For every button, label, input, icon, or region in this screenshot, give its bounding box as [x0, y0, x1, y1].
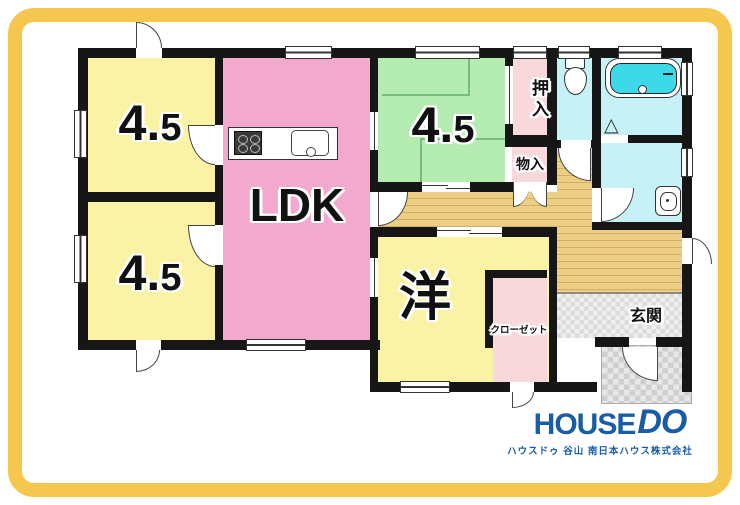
door-opening: [592, 188, 601, 222]
wall: [592, 222, 684, 230]
door-opening: [682, 238, 692, 264]
wall: [78, 340, 380, 350]
logo-text-do: DO: [637, 403, 686, 442]
genkan-step-line: [557, 292, 684, 294]
wall: [485, 270, 493, 348]
door-opening: [510, 382, 534, 392]
wall: [505, 135, 547, 147]
sliding-door-line: [374, 112, 375, 150]
room-label-tatami-a: 4.5: [95, 98, 205, 148]
corridor-entry-hall: [557, 227, 684, 293]
door-opening: [561, 140, 591, 148]
wall: [78, 192, 223, 202]
window: [681, 62, 693, 96]
sliding-door-line: [446, 188, 470, 189]
wall: [549, 227, 557, 392]
window: [681, 148, 693, 177]
window: [415, 46, 480, 59]
room-label-tatami-b: 4.5: [95, 248, 205, 298]
company-tagline: ハウスドゥ 谷山 南日本ハウス株式会社: [472, 443, 728, 457]
room-label-oshiire: 押入: [512, 70, 547, 130]
room-label-closet: クローゼット: [487, 326, 551, 336]
window: [285, 46, 332, 59]
room-label-western: 洋: [375, 272, 475, 324]
room-label-tatami-c: 4.5: [388, 100, 498, 150]
door-arc: [136, 22, 162, 48]
window: [74, 110, 87, 158]
floor-plan-page: △ 4.5 4.5 LDK 4.5 押入 物入 洋 クローゼット 玄関 HOUS…: [0, 0, 740, 505]
window: [74, 235, 87, 283]
room-label-genkan: 玄関: [618, 309, 674, 325]
door-opening: [215, 125, 223, 165]
door-arc: [136, 350, 160, 372]
housedo-logo: HOUSE DO: [492, 406, 728, 442]
sliding-door-line: [509, 66, 510, 124]
window: [400, 381, 450, 393]
washbasin-icon: [655, 186, 681, 216]
wall: [656, 337, 682, 347]
wall: [592, 48, 601, 143]
tatami-line: [382, 94, 470, 96]
wall: [682, 48, 692, 392]
stove-icon: [234, 131, 262, 155]
sliding-door: [422, 182, 470, 192]
room-label-monoire: 物入: [508, 157, 552, 171]
room-label-ldk: LDK: [222, 182, 372, 228]
logo-text-house: HOUSE: [534, 408, 636, 442]
sliding-door: [437, 227, 502, 237]
bathtub-icon: [605, 58, 681, 98]
window: [513, 46, 547, 59]
entry-side-area: [557, 338, 595, 382]
wall: [485, 270, 547, 278]
door-opening: [601, 135, 628, 143]
wall: [595, 337, 629, 347]
door-opening: [136, 340, 161, 350]
door-opening: [136, 48, 162, 58]
kitchen-sink-icon: [291, 130, 329, 156]
toilet-icon: [564, 58, 588, 98]
window: [246, 339, 306, 351]
corridor-hallway: [378, 192, 601, 227]
folding-door-icon: △: [604, 116, 619, 135]
sliding-door-line: [469, 233, 502, 234]
tatami-line: [468, 58, 470, 95]
sliding-door-line: [422, 185, 448, 186]
door-arc: [692, 238, 712, 264]
sliding-door-line: [437, 230, 471, 231]
door-opening: [215, 225, 223, 265]
